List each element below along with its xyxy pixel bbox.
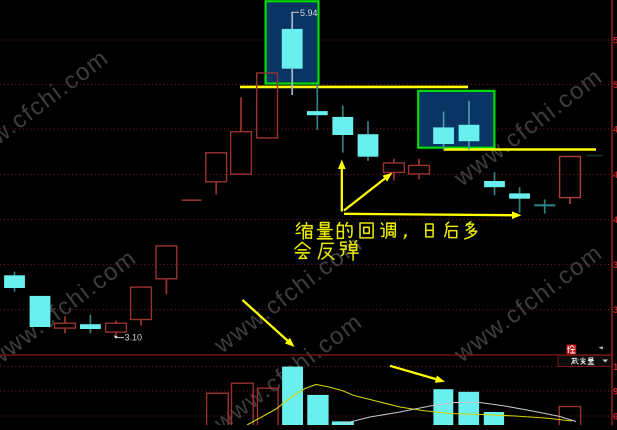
svg-text:5: 5 xyxy=(613,80,617,91)
svg-text:4: 4 xyxy=(613,170,617,181)
svg-text:3: 3 xyxy=(613,260,617,271)
svg-text:3.10: 3.10 xyxy=(125,333,143,343)
svg-text:4: 4 xyxy=(613,215,617,226)
svg-text:3: 3 xyxy=(613,305,617,316)
svg-text:6: 6 xyxy=(613,412,617,423)
svg-text:1: 1 xyxy=(613,362,617,373)
svg-text:5.94: 5.94 xyxy=(300,8,318,18)
svg-text:5: 5 xyxy=(613,36,617,47)
svg-text:9: 9 xyxy=(613,387,617,398)
svg-text:4: 4 xyxy=(613,125,617,136)
